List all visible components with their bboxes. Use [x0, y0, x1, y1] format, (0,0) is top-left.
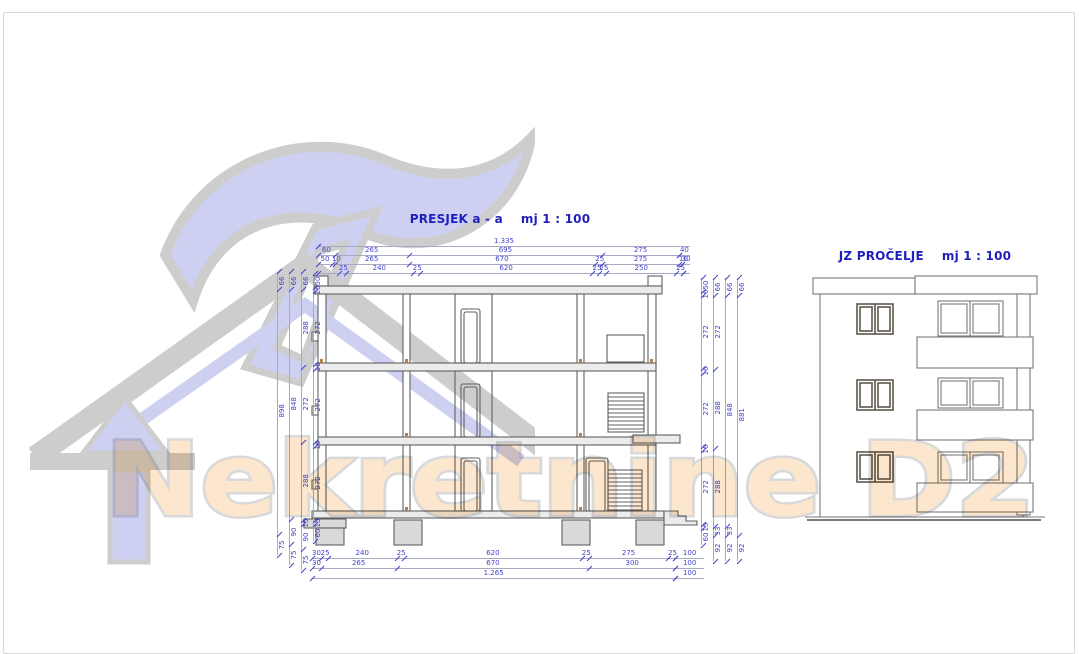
- dim-label: 60: [703, 531, 710, 542]
- dim-label: 670: [409, 256, 596, 263]
- column-2: [403, 294, 410, 511]
- dim-label: 25: [592, 265, 599, 272]
- dim-segment: 100: [675, 558, 704, 568]
- dim-label: 66: [727, 281, 734, 292]
- stairs-upper-flight: [608, 393, 644, 432]
- dim-label: 272: [715, 328, 722, 339]
- dim-label: 92: [715, 543, 722, 554]
- ground-slab: [312, 511, 664, 518]
- dimension-chain: 662722882883392: [713, 278, 725, 561]
- dim-label: 75: [279, 539, 286, 550]
- section-title: PRESJEK a - amj 1 : 100: [300, 212, 700, 226]
- dim-label: 25: [599, 265, 606, 272]
- dim-label: 60: [315, 527, 322, 538]
- dim-label: 272: [315, 401, 322, 412]
- door-wall-floor1: [455, 445, 492, 511]
- dim-label: 275: [602, 247, 679, 254]
- dim-label: 50: [318, 256, 332, 263]
- dim-segment: 881: [738, 296, 749, 536]
- dim-segment: 288: [302, 443, 313, 521]
- dim-segment: 272: [702, 451, 713, 524]
- exterior-steps: [664, 511, 697, 525]
- dim-label: 92: [739, 543, 746, 554]
- dim-segment: 250: [606, 263, 676, 273]
- right-wall: [648, 294, 656, 511]
- dim-segment: 275: [589, 548, 668, 558]
- dim-label: 272: [315, 323, 322, 334]
- dim-segment: 620: [404, 548, 582, 558]
- dim-segment: 90: [290, 520, 301, 544]
- dim-label: 66: [715, 281, 722, 292]
- dim-segment: 75: [278, 535, 289, 555]
- roof-slab: [314, 286, 662, 294]
- dim-segment: 25: [339, 263, 346, 273]
- dim-segment: 92: [714, 536, 725, 561]
- dim-label: 25: [321, 550, 328, 557]
- dim-segment: 272: [714, 296, 725, 370]
- stairs-lower-flight: [608, 470, 642, 510]
- dim-segment: 272: [302, 368, 313, 442]
- dim-label: 265: [321, 560, 397, 567]
- dim-label: 695: [409, 247, 603, 254]
- stair-landing-exterior: [633, 435, 680, 443]
- dim-segment: 288: [714, 370, 725, 448]
- dim-label: 25: [397, 550, 404, 557]
- dim-label: 25: [582, 550, 589, 557]
- section-title-text: PRESJEK a - a: [410, 212, 503, 226]
- facade-drawing: [805, 272, 1045, 527]
- dim-label: 620: [404, 550, 582, 557]
- dim-label: 265: [335, 247, 409, 254]
- facade-small-windows: [857, 304, 893, 482]
- dim-label: 90: [303, 532, 310, 543]
- dim-label: 25: [595, 256, 602, 263]
- dim-label: 30: [312, 560, 321, 567]
- dim-label: 898: [279, 407, 286, 418]
- dim-segment: 30: [312, 548, 321, 558]
- beam-joint-marks: [320, 359, 653, 511]
- dim-segment: 272: [314, 370, 325, 443]
- dimension-chain: 501627216272162721560: [701, 278, 713, 545]
- dim-segment: 898: [278, 290, 289, 535]
- dim-segment: 848: [290, 290, 301, 520]
- dim-segment: 620: [420, 263, 593, 273]
- dim-segment: 60: [702, 529, 713, 545]
- dim-segment: 25: [582, 548, 589, 558]
- dim-label: 25: [339, 265, 346, 272]
- dim-label: 100: [675, 560, 704, 567]
- floor-slab-1: [318, 437, 656, 445]
- dim-label: 75: [303, 554, 310, 565]
- dim-segment: 30: [312, 558, 321, 568]
- roof-parapet-right: [648, 276, 662, 286]
- dim-label: 66: [739, 281, 746, 292]
- dim-label: 66: [291, 275, 298, 286]
- dim-label: 240: [346, 265, 413, 272]
- dim-segment: 848: [726, 296, 737, 527]
- dim-label: 240: [328, 550, 397, 557]
- facade-scale-label: mj 1 : 100: [942, 249, 1011, 263]
- dimension-chain: 668489075: [289, 272, 301, 565]
- dim-segment: 272: [314, 447, 325, 520]
- dim-segment: 92: [726, 536, 737, 561]
- dim-segment: 25: [413, 263, 420, 273]
- dim-segment: 100: [675, 548, 704, 558]
- dim-label: 272: [315, 479, 322, 490]
- dim-label: 670: [397, 560, 589, 567]
- dimension-chain: 6689875: [277, 272, 289, 555]
- door-wall-floor3: [455, 294, 492, 363]
- dim-segment: 288: [714, 449, 725, 527]
- dim-label: 90: [291, 527, 298, 538]
- dim-label: 1.265: [312, 570, 675, 577]
- facade-side-wall: [1017, 294, 1030, 515]
- dim-label: 272: [703, 483, 710, 494]
- dim-label: 75: [291, 549, 298, 560]
- dim-label: 66: [279, 275, 286, 286]
- dim-label: 288: [303, 324, 310, 335]
- dim-segment: 272: [314, 292, 325, 365]
- dim-segment: 272: [702, 296, 713, 369]
- dim-segment: [683, 263, 690, 273]
- dim-segment: 240: [346, 263, 413, 273]
- dim-segment: 25: [668, 548, 675, 558]
- dim-label: 265: [335, 256, 409, 263]
- dimension-chain: 66288272288159075: [301, 272, 313, 570]
- floor-slab-2: [318, 363, 656, 371]
- section-drawing: [300, 262, 700, 572]
- dimension-row: 1.265100: [312, 568, 704, 579]
- dim-label: 272: [703, 327, 710, 338]
- dim-label: 275: [602, 256, 679, 263]
- dim-segment: 75: [290, 545, 301, 565]
- facade-roof-band-left: [813, 278, 915, 294]
- logo-post: [110, 470, 148, 562]
- dim-label: 848: [291, 400, 298, 411]
- dim-label: 60: [318, 247, 335, 254]
- dimension-chain: 668483392: [725, 278, 737, 561]
- dim-label: 92: [727, 543, 734, 554]
- dim-segment: 92: [738, 536, 749, 561]
- dim-segment: 25: [397, 548, 404, 558]
- dim-segment: 265: [321, 558, 397, 568]
- dim-label: 288: [303, 476, 310, 487]
- dim-segment: 288: [302, 290, 313, 368]
- dim-label: 25: [676, 265, 683, 272]
- dim-label: 100: [675, 570, 704, 577]
- section-scale-label: mj 1 : 100: [521, 212, 590, 226]
- dim-label: 275: [589, 550, 668, 557]
- dimension-chain: 501627216272162721560: [313, 274, 325, 541]
- dim-label: 620: [420, 265, 593, 272]
- door-stair-hall: [586, 458, 608, 511]
- facade-title: JZ PROČELJEmj 1 : 100: [805, 249, 1045, 263]
- dim-label: 30: [312, 550, 321, 557]
- dim-label: 250: [606, 265, 676, 272]
- dim-label: 272: [703, 405, 710, 416]
- dim-segment: 240: [328, 548, 397, 558]
- dim-label: 100: [675, 550, 704, 557]
- dim-segment: 25: [592, 263, 599, 273]
- dim-segment: 25: [676, 263, 683, 273]
- facade-roof-band-right: [915, 276, 1037, 294]
- dim-label: 25: [668, 550, 675, 557]
- dim-segment: 300: [589, 558, 675, 568]
- dim-segment: [318, 263, 339, 273]
- dim-segment: 670: [397, 558, 589, 568]
- stair-window-floor3: [607, 335, 644, 362]
- foundations: [304, 519, 664, 545]
- dim-label: 300: [589, 560, 675, 567]
- dim-segment: 25: [321, 548, 328, 558]
- dim-segment: 60: [314, 525, 325, 541]
- dim-segment: 272: [702, 374, 713, 447]
- dim-label: 25: [413, 265, 420, 272]
- dim-label: 1.335: [318, 238, 690, 245]
- door-wall-floor2: [455, 371, 492, 437]
- dim-segment: 100: [675, 568, 704, 578]
- dim-segment: 25: [599, 263, 606, 273]
- dim-label: 881: [739, 410, 746, 421]
- dim-segment: 75: [302, 550, 313, 570]
- dimension-row: 2524025620252525025: [318, 263, 690, 274]
- dim-label: 272: [303, 400, 310, 411]
- dim-label: 66: [303, 275, 310, 286]
- column-3: [577, 294, 584, 511]
- dim-label: 848: [727, 406, 734, 417]
- dim-segment: 90: [302, 525, 313, 550]
- dim-label: 288: [715, 482, 722, 493]
- dim-label: 288: [715, 404, 722, 415]
- dimension-chain: 6688192: [737, 278, 749, 561]
- dim-segment: 1.265: [312, 568, 675, 578]
- logo-eave-bar: [30, 453, 195, 470]
- facade-title-text: JZ PROČELJE: [839, 249, 924, 263]
